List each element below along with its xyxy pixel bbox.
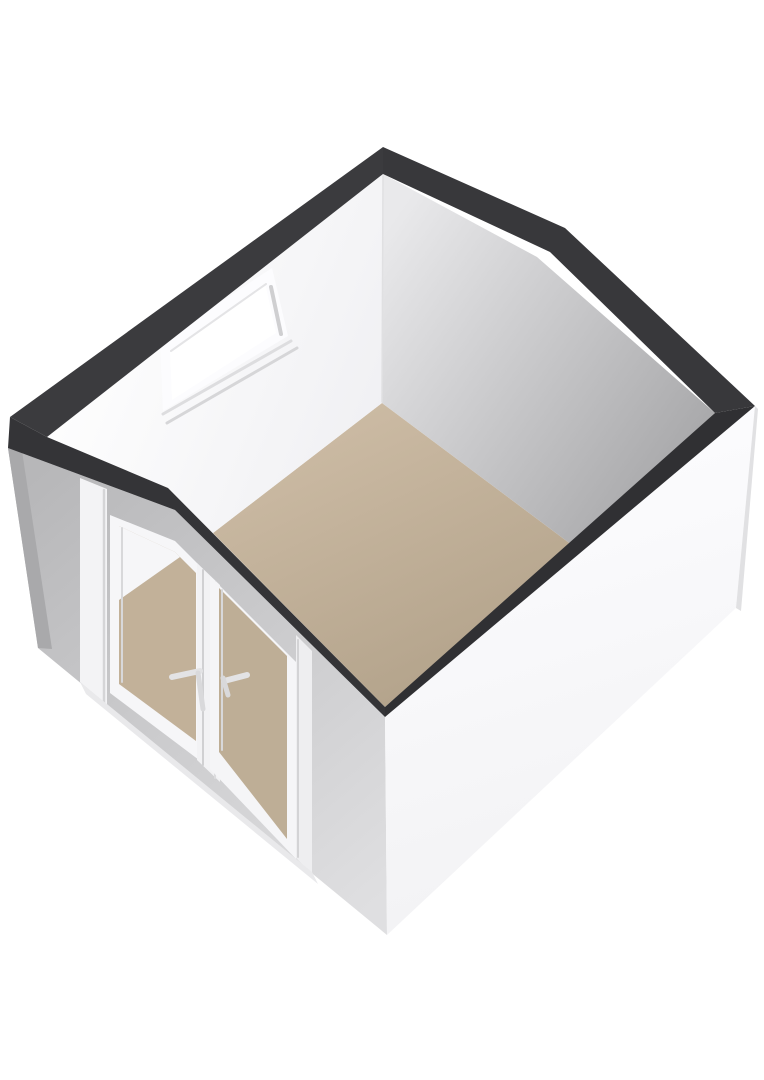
interior-corner-line [382, 176, 383, 402]
floorplan-viewport [0, 0, 764, 1080]
floorplan-3d-view [0, 0, 764, 1080]
